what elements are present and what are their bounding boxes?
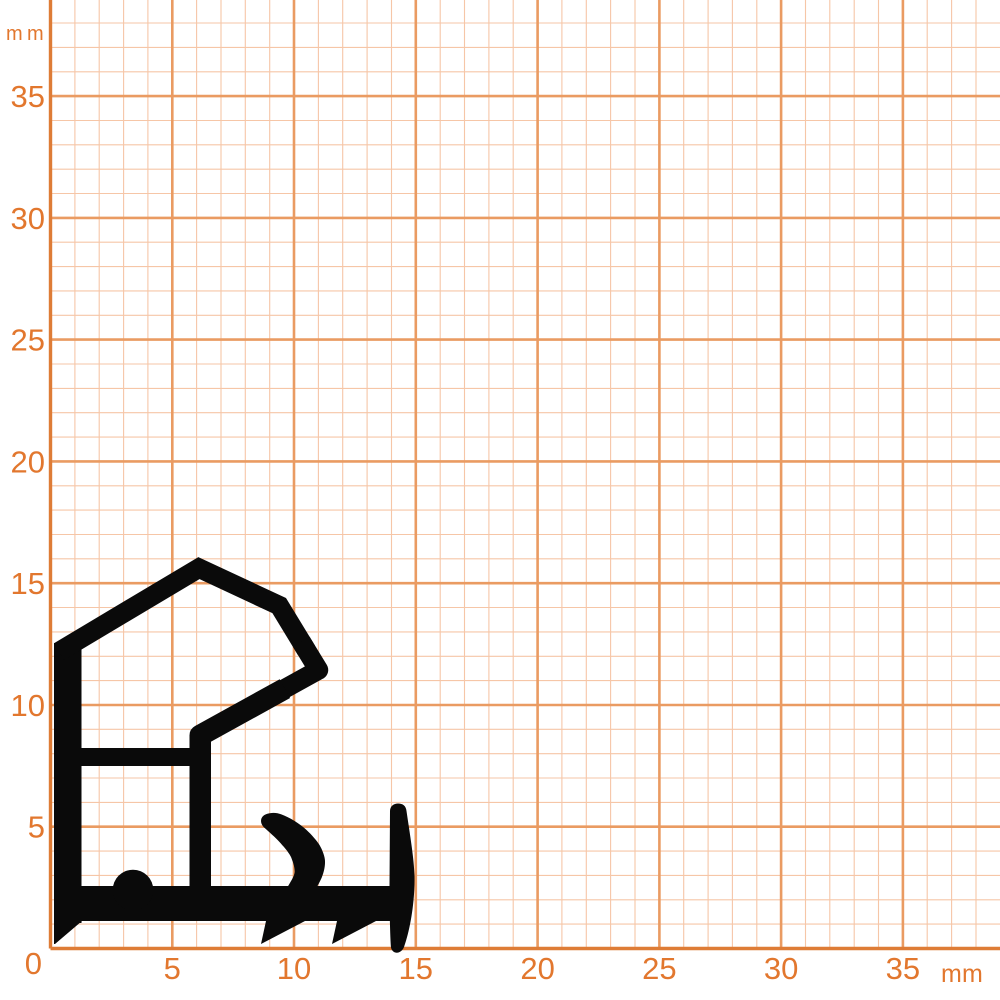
svg-text:20: 20 xyxy=(520,951,554,986)
svg-text:5: 5 xyxy=(164,951,181,986)
svg-text:mm: mm xyxy=(6,23,48,45)
svg-text:20: 20 xyxy=(11,444,45,479)
svg-text:30: 30 xyxy=(11,201,45,236)
svg-text:10: 10 xyxy=(277,951,311,986)
svg-text:15: 15 xyxy=(11,566,45,601)
svg-text:0: 0 xyxy=(25,946,42,981)
svg-text:30: 30 xyxy=(764,951,798,986)
svg-text:35: 35 xyxy=(11,79,45,114)
svg-text:35: 35 xyxy=(886,951,920,986)
svg-text:10: 10 xyxy=(11,688,45,723)
svg-text:mm: mm xyxy=(941,960,983,988)
svg-text:25: 25 xyxy=(642,951,676,986)
svg-text:5: 5 xyxy=(28,810,45,845)
svg-text:25: 25 xyxy=(11,323,45,358)
svg-text:15: 15 xyxy=(399,951,433,986)
